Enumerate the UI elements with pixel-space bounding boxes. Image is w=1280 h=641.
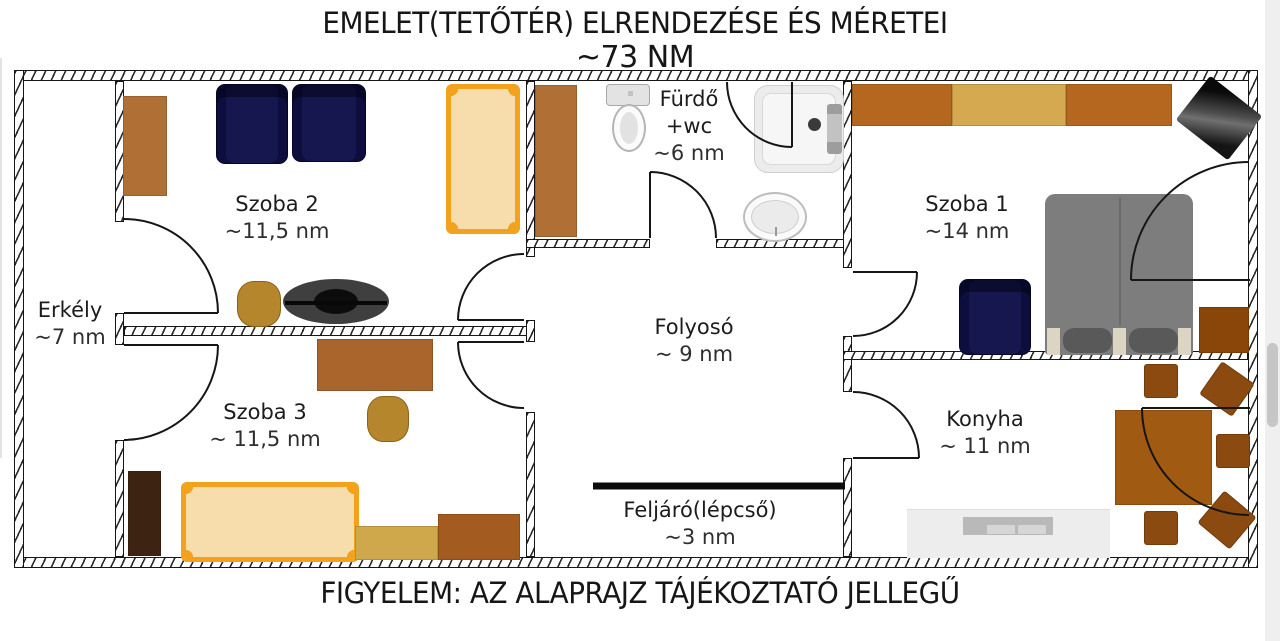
wall-corridor-right-upper	[843, 81, 852, 268]
bed-post	[1047, 328, 1060, 355]
door-szoba3-corridor	[458, 342, 524, 408]
dining-chair	[1199, 361, 1255, 417]
wall-szoba2-szoba3	[124, 326, 535, 336]
shower-faucet-icon	[827, 104, 842, 154]
stove-burner	[1018, 525, 1046, 534]
armchair-navy-1	[216, 84, 288, 164]
door-szoba2-corridor	[458, 254, 524, 320]
wall-corridor-left-upper	[526, 81, 535, 257]
toilet-bowl-icon	[612, 104, 646, 152]
wall-outer-left	[14, 70, 24, 568]
scrollbar-thumb[interactable]	[1267, 343, 1278, 427]
wardrobe-right-szoba1	[1066, 84, 1172, 126]
wardrobe-center-szoba1	[952, 84, 1066, 126]
wall-outer-top	[14, 70, 1258, 81]
wall-corridor-left-middle	[526, 320, 535, 342]
dining-table	[1115, 410, 1212, 505]
door-szoba1-corridor	[853, 272, 917, 336]
sink-icon	[743, 192, 807, 242]
room-label-erkely: Erkély ~7 nm	[34, 297, 105, 351]
room-label-szoba2: Szoba 2 ~11,5 nm	[225, 191, 330, 245]
shower-drain-icon	[808, 118, 821, 131]
wall-balcony-middle	[115, 313, 124, 345]
stove-burner	[987, 525, 1015, 534]
room-label-furdo: Fürdő +wc ~6 nm	[653, 86, 724, 167]
toilet-tank-icon	[606, 84, 650, 106]
room-label-szoba3: Szoba 3 ~ 11,5 nm	[209, 399, 320, 453]
kitchen-counter	[907, 509, 1110, 558]
page-edge-line	[0, 58, 2, 458]
tall-cabinet-szoba3	[128, 471, 161, 556]
armchair-navy-szoba1	[959, 279, 1031, 355]
scrollbar-track[interactable]	[1265, 0, 1280, 641]
door-konyha-corridor	[853, 392, 919, 458]
wall-corridor-right-lower	[843, 458, 852, 557]
wall-balcony-lower	[115, 440, 124, 557]
wall-corridor-left-lower	[526, 412, 535, 557]
room-label-szoba1: Szoba 1 ~14 nm	[925, 191, 1010, 245]
lounge-table-szoba2	[283, 279, 389, 324]
nightstand-szoba1	[1199, 307, 1249, 353]
single-bed-szoba2	[446, 84, 520, 234]
door-bathroom	[650, 172, 716, 238]
cabinet-szoba2	[123, 96, 167, 196]
cabinet-bathroom	[535, 85, 577, 237]
wardrobe-left-szoba1	[852, 84, 952, 126]
room-label-konyha: Konyha ~ 11 nm	[939, 406, 1030, 460]
chair-szoba2	[237, 281, 281, 327]
armchair-navy-2	[292, 84, 366, 162]
wall-corridor-right-middle	[843, 336, 852, 392]
desk-chair-szoba3	[367, 396, 409, 442]
dresser-brown-szoba3	[438, 514, 520, 560]
dining-chair	[1144, 364, 1178, 398]
bed-post	[1178, 328, 1191, 355]
bed-seam	[1119, 198, 1121, 326]
room-label-folyoso: Folyosó ~ 9 nm	[654, 314, 733, 368]
bed-pillow-right	[1129, 328, 1178, 353]
bed-post	[1113, 328, 1126, 355]
disclaimer-text: FIGYELEM: AZ ALAPRAJZ TÁJÉKOZTATÓ JELLEG…	[26, 576, 1255, 610]
wall-outer-right	[1248, 70, 1258, 568]
room-label-feljaro: Feljáró(lépcső) ~3 nm	[623, 497, 776, 551]
wall-bathroom-bottom-left	[526, 239, 650, 248]
door-balcony-szoba2	[124, 219, 218, 313]
bed-pillow-left	[1063, 328, 1112, 353]
dining-chair	[1144, 511, 1178, 545]
page-title: EMELET(TETŐTÉR) ELRENDEZÉSE ÉS MÉRETEI	[25, 6, 1244, 40]
door-balcony-szoba3	[124, 345, 218, 440]
floorplan-page: EMELET(TETŐTÉR) ELRENDEZÉSE ÉS MÉRETEI ~…	[0, 0, 1280, 641]
shower-icon	[754, 85, 844, 173]
dresser-tan-szoba3	[355, 526, 438, 560]
double-bed-szoba1	[1045, 194, 1193, 355]
dining-chair	[1216, 434, 1250, 468]
desk-szoba3	[317, 339, 433, 391]
single-bed-szoba3	[181, 482, 359, 562]
